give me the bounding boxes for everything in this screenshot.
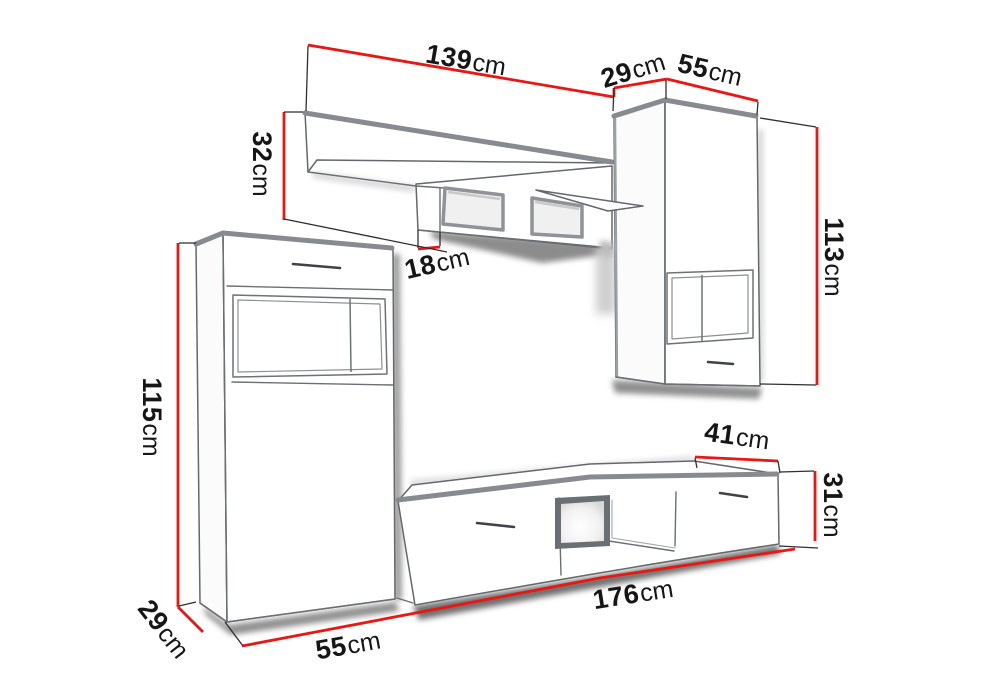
shelf-opening-left: [443, 188, 503, 230]
upper-cabinet: [614, 100, 760, 386]
dim-line-tall-depth: [178, 607, 203, 632]
dim-label-shelf-width: 139cm: [424, 39, 509, 82]
dim-label-tv-stand-depth: 41cm: [703, 417, 772, 456]
tall-cabinet-side: [196, 233, 227, 622]
diagram-canvas: 139cm 29cm 55cm 32cm 18cm 113cm 115cm 29…: [0, 0, 1000, 700]
tall-cabinet: [196, 233, 395, 622]
dim-label-tall-cabinet-height: 115cm: [137, 377, 167, 456]
dim-label-tv-stand-height: 31cm: [818, 472, 848, 537]
shelf-opening-right: [532, 198, 582, 237]
furniture-dimension-diagram: 139cm 29cm 55cm 32cm 18cm 113cm 115cm 29…: [0, 0, 1000, 700]
dim-label-upper-cabinet-depth: 29cm: [597, 46, 668, 94]
tv-stand-open-niche: [555, 495, 610, 549]
upper-cabinet-side: [614, 100, 665, 384]
dim-label-shelf-height: 32cm: [247, 131, 277, 196]
dim-label-upper-cabinet-width: 55cm: [675, 48, 745, 92]
tall-cabinet-front: [223, 233, 395, 622]
dim-line-tv-depth: [695, 457, 778, 461]
dim-label-upper-cabinet-height: 113cm: [819, 217, 849, 296]
